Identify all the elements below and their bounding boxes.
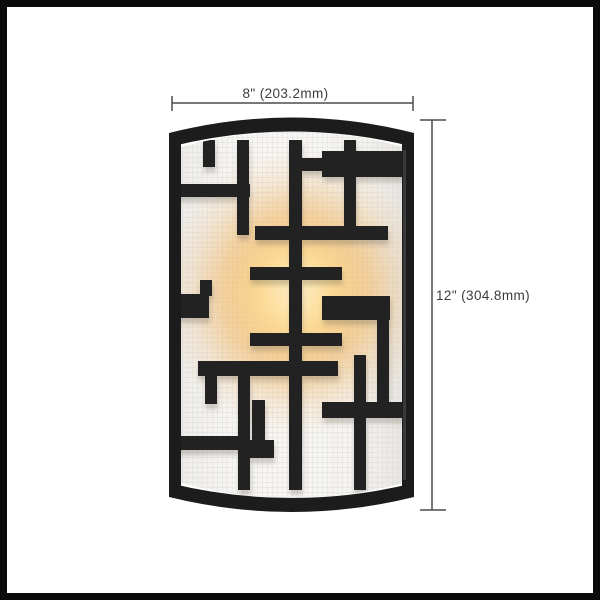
bar: [172, 184, 250, 197]
bar: [198, 361, 338, 376]
bar: [322, 296, 390, 320]
bar: [322, 402, 403, 418]
bar: [250, 333, 342, 346]
bar: [250, 267, 342, 280]
frame-left-band: [169, 133, 181, 497]
bar: [289, 140, 302, 490]
bar: [354, 355, 366, 490]
bar: [252, 400, 265, 444]
bar: [172, 436, 242, 450]
product-dimension-image: 8" (203.2mm) 12" (304.8mm): [0, 0, 600, 600]
bar: [238, 361, 250, 490]
width-dimension-label: 8" (203.2mm): [165, 86, 406, 101]
bar: [203, 140, 215, 167]
bar: [289, 158, 329, 171]
bar: [322, 151, 403, 177]
height-dimension-line: [420, 120, 446, 510]
bar: [200, 280, 212, 296]
bar: [255, 226, 388, 240]
height-dimension-label: 12" (304.8mm): [436, 288, 530, 303]
bar: [248, 440, 274, 458]
diagram-scene: 8" (203.2mm) 12" (304.8mm): [0, 0, 600, 600]
frame-highlight: [403, 150, 406, 480]
